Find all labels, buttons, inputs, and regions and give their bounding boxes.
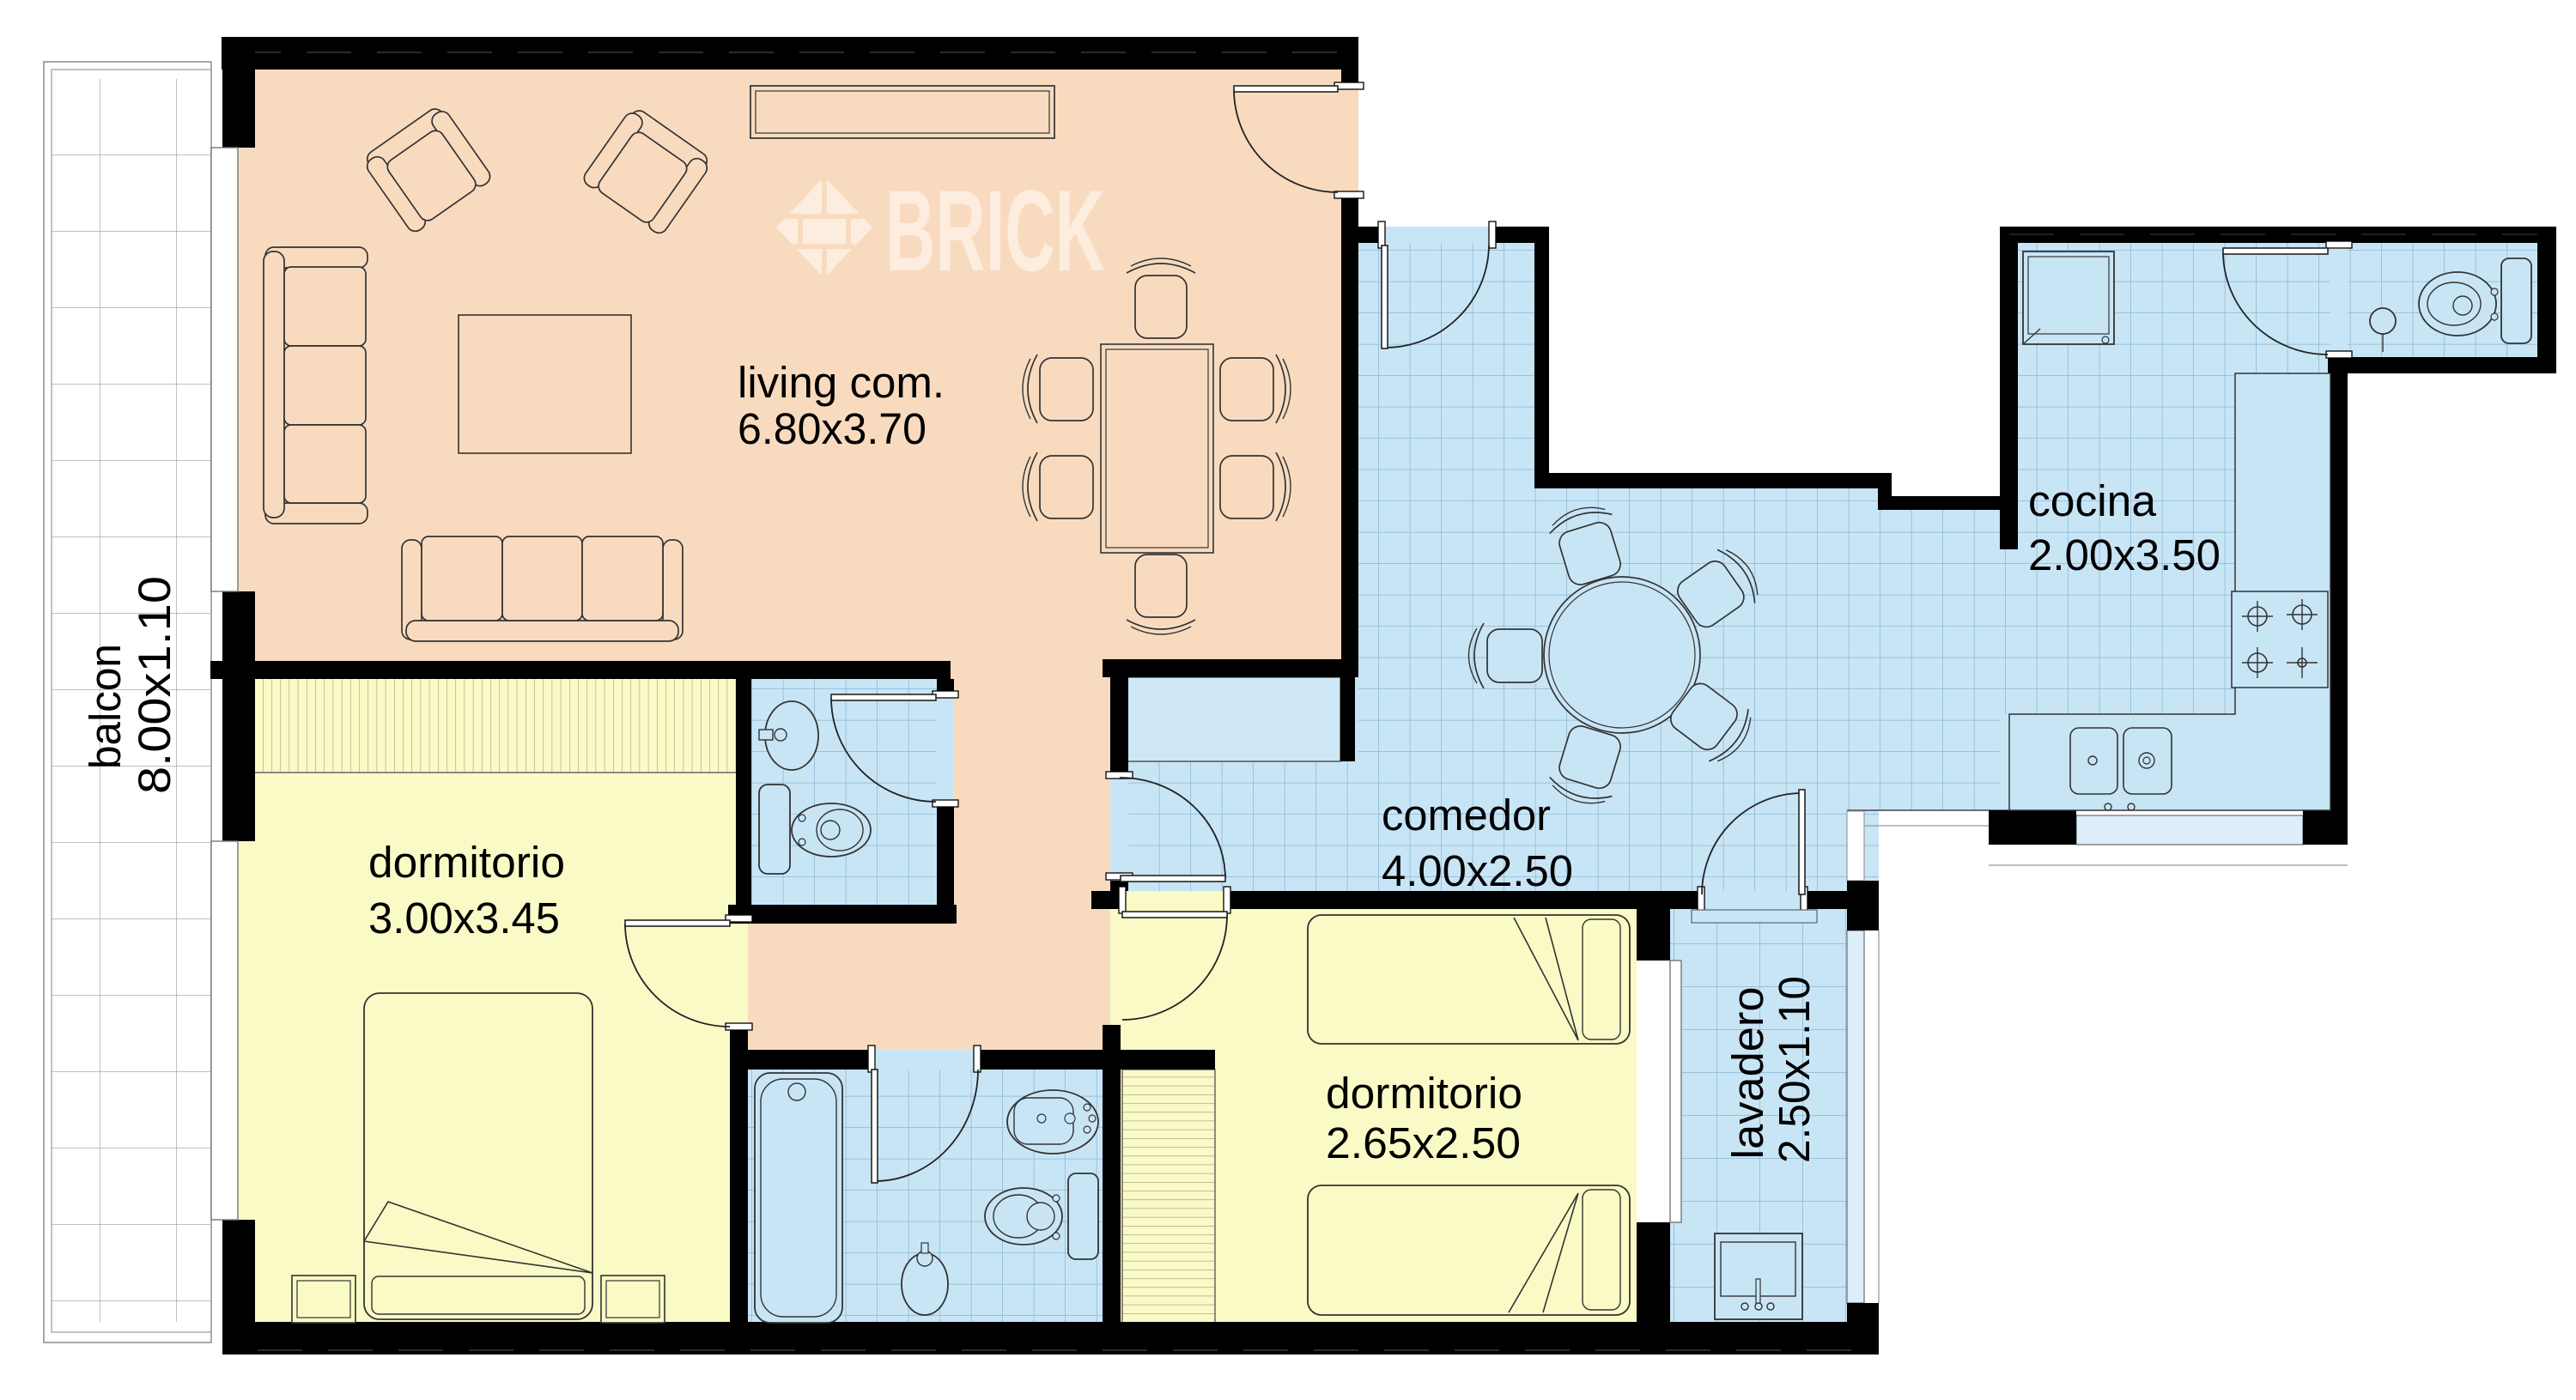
- svg-text:cocina: cocina: [2028, 476, 2157, 525]
- svg-text:6.80x3.70: 6.80x3.70: [738, 404, 927, 453]
- svg-text:lavadero: lavadero: [1723, 987, 1772, 1160]
- svg-text:2.50x1.10: 2.50x1.10: [1770, 976, 1819, 1163]
- svg-text:2.00x3.50: 2.00x3.50: [2028, 530, 2221, 579]
- svg-text:BRICK: BRICK: [885, 167, 1105, 295]
- svg-text:comedor: comedor: [1382, 791, 1551, 839]
- svg-text:3.00x3.45: 3.00x3.45: [368, 894, 560, 942]
- svg-text:dormitorio: dormitorio: [368, 838, 565, 887]
- svg-text:2.65x2.50: 2.65x2.50: [1326, 1118, 1521, 1167]
- svg-text:balcon: balcon: [81, 644, 130, 769]
- svg-text:8.00x1.10: 8.00x1.10: [130, 576, 180, 794]
- svg-text:dormitorio: dormitorio: [1326, 1069, 1522, 1118]
- svg-text:4.00x2.50: 4.00x2.50: [1382, 846, 1573, 895]
- svg-text:living com.: living com.: [738, 358, 945, 407]
